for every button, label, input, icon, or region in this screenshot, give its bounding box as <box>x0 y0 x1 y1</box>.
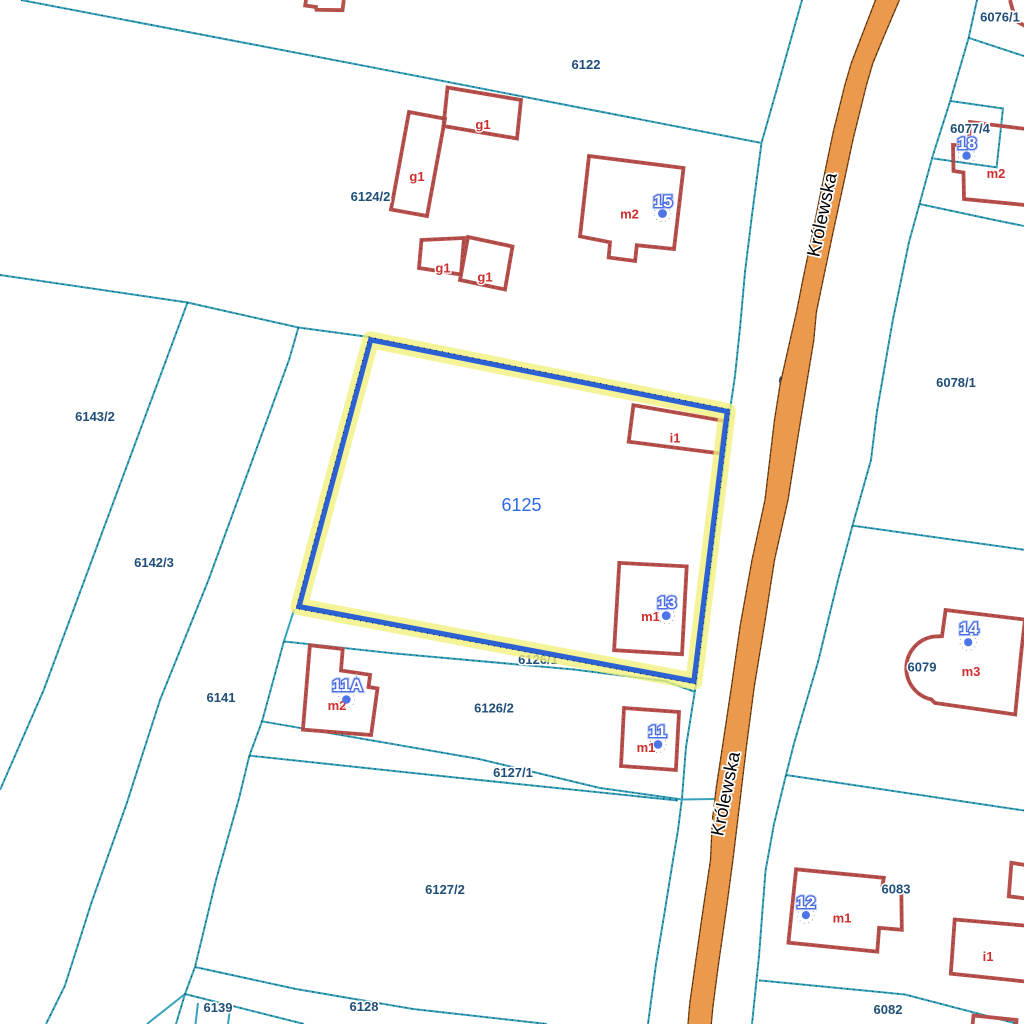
svg-text:6125: 6125 <box>501 495 541 515</box>
svg-text:g1: g1 <box>409 169 424 184</box>
svg-text:6083: 6083 <box>882 882 911 897</box>
svg-text:6142/3: 6142/3 <box>134 555 174 570</box>
svg-text:g1: g1 <box>477 270 492 285</box>
svg-text:6143/2: 6143/2 <box>75 409 115 424</box>
svg-text:6076/1: 6076/1 <box>980 10 1020 25</box>
svg-text:m1: m1 <box>833 911 852 926</box>
svg-text:6128: 6128 <box>350 999 379 1014</box>
svg-text:11A: 11A <box>332 676 362 695</box>
svg-text:m2: m2 <box>987 166 1006 181</box>
svg-text:6078/1: 6078/1 <box>936 375 976 390</box>
svg-text:6122: 6122 <box>572 57 601 72</box>
svg-text:12: 12 <box>797 893 816 912</box>
svg-text:g1: g1 <box>475 117 490 132</box>
svg-text:15: 15 <box>654 192 673 211</box>
svg-text:6126/2: 6126/2 <box>474 701 514 716</box>
svg-text:14: 14 <box>960 619 979 638</box>
svg-text:m2: m2 <box>620 207 639 222</box>
svg-text:6082: 6082 <box>874 1002 903 1017</box>
svg-text:6127/2: 6127/2 <box>425 882 465 897</box>
svg-text:m1: m1 <box>637 740 656 755</box>
svg-text:g1: g1 <box>435 261 450 276</box>
svg-text:6124/2: 6124/2 <box>351 189 391 204</box>
svg-text:6127/1: 6127/1 <box>493 765 533 780</box>
svg-text:13: 13 <box>658 593 677 612</box>
svg-text:11: 11 <box>649 722 667 741</box>
svg-text:6079: 6079 <box>908 660 937 675</box>
svg-text:i1: i1 <box>983 949 994 964</box>
svg-text:6139: 6139 <box>204 1000 233 1015</box>
svg-text:18: 18 <box>958 134 977 153</box>
svg-text:6141: 6141 <box>207 690 236 705</box>
svg-text:m3: m3 <box>962 664 981 679</box>
svg-text:i1: i1 <box>670 431 681 446</box>
